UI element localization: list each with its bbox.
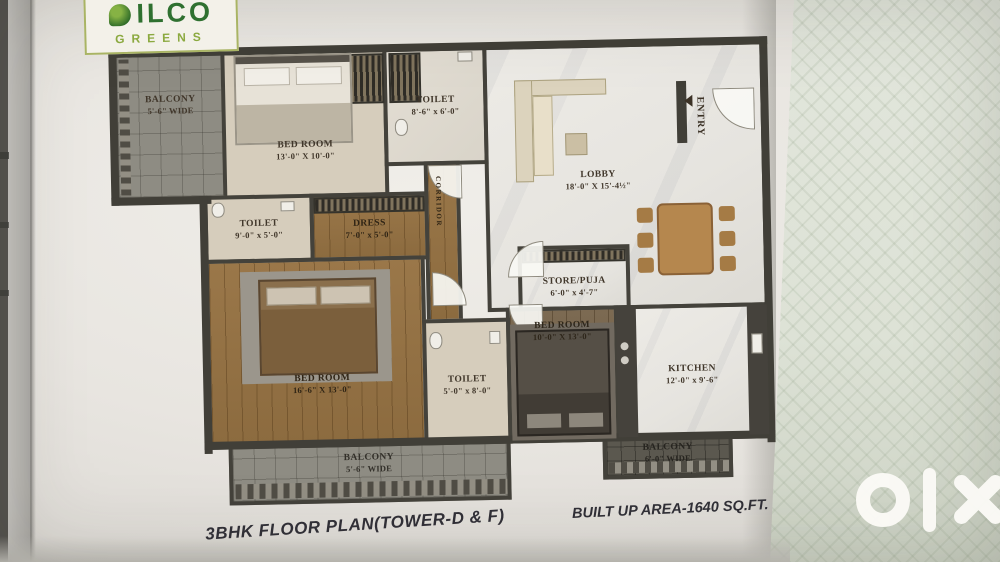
paper-edge-marks — [0, 290, 9, 296]
bed-headboard — [235, 55, 349, 64]
washbasin-graphic — [280, 201, 294, 211]
sofa-graphic — [532, 96, 554, 176]
wc-graphic — [429, 332, 442, 349]
pillow-graphic — [244, 67, 290, 86]
corridor-label: CORRIDOR — [434, 176, 443, 227]
paper-edge-marks — [0, 152, 9, 159]
room-balcony-top — [112, 52, 227, 202]
bed-graphic — [515, 329, 611, 437]
chair-graphic — [720, 256, 736, 271]
chair-graphic — [637, 233, 653, 248]
paper-crease — [30, 0, 36, 562]
builder-logo: ILCO GREENS — [83, 0, 239, 55]
floor-plan: ENTRY CORRIDOR BALCONY 5'-6" WIDE BED RO… — [105, 33, 781, 515]
coffee-table-graphic — [565, 133, 587, 155]
paper-edge-strip — [8, 0, 32, 562]
pillow-graphic — [569, 413, 603, 428]
wall-segment — [676, 81, 687, 143]
room-label-toilet-top: TOILET 8'-6" x 6'-0" — [387, 93, 483, 118]
washbasin-graphic — [457, 51, 472, 61]
room-label-balcony-right: BALCONY 6'-0" WIDE — [606, 440, 730, 466]
wall-segment — [111, 196, 211, 206]
dining-table-graphic — [657, 202, 714, 275]
room-label-balcony-top: BALCONY 5'-6" WIDE — [118, 93, 222, 119]
leaf-icon — [108, 3, 131, 26]
wc-graphic — [211, 203, 224, 218]
wardrobe-graphic — [313, 195, 424, 213]
sink-graphic — [751, 333, 762, 353]
olx-o-icon — [856, 473, 910, 527]
room-dims: 5'-6" WIDE — [118, 105, 222, 118]
room-label-lobby: LOBBY 18'-0" X 15'-4½" — [528, 167, 668, 193]
room-label-dress: DRESS 7'-0" x 5'-0" — [312, 216, 427, 242]
entry-arrow-icon — [684, 95, 692, 107]
olx-x-icon — [949, 468, 1000, 532]
blanket-graphic — [236, 103, 351, 143]
bed-graphic — [258, 277, 378, 375]
pillow-graphic — [296, 66, 342, 85]
room-label-bedroom-3: BED ROOM 16'-6" X 13'-0" — [247, 371, 397, 398]
room-dims: 10'-0" X 13'-0" — [508, 331, 616, 344]
sofa-graphic — [514, 80, 534, 182]
room-label-bedroom-1: BED ROOM 13'-0" X 10'-0" — [232, 137, 378, 163]
builder-subname: GREENS — [96, 29, 226, 46]
room-dims: 5'-0" x 8'-0" — [425, 385, 509, 398]
chair-graphic — [638, 258, 654, 273]
balcony-railing — [235, 479, 507, 500]
entry-label: ENTRY — [694, 96, 706, 136]
room-label-balcony-bottom: BALCONY 5'-6" WIDE — [299, 450, 439, 476]
wc-graphic — [395, 119, 408, 136]
paper-bottom-shadow — [0, 536, 790, 562]
balcony-railing — [118, 60, 131, 196]
chair-graphic — [637, 208, 653, 223]
room-label-toilet-bottom: TOILET 5'-0" x 8'-0" — [425, 373, 509, 398]
room-label-kitchen: KITCHEN 12'-0" x 9'-6" — [617, 361, 767, 388]
builder-name: ILCO — [136, 0, 213, 30]
room-dims: 9'-0" x 5'-0" — [206, 229, 312, 242]
room-label-store-puja: STORE/PUJA 6'-0" x 4'-7" — [520, 274, 628, 300]
olx-bar-icon — [923, 468, 936, 532]
washbasin-graphic — [489, 331, 500, 344]
room-dims: 6'-0" x 4'-7" — [520, 286, 628, 299]
olx-logo — [856, 464, 1000, 536]
bed-graphic — [233, 53, 353, 145]
room-label-toilet-left: TOILET 9'-0" x 5'-0" — [206, 217, 312, 243]
photo-left-edge — [0, 0, 8, 562]
room-dims: 8'-6" x 6'-0" — [388, 105, 484, 118]
room-label-bedroom-2: BED ROOM 10'-0" X 13'-0" — [508, 318, 616, 344]
chair-graphic — [719, 231, 735, 246]
listing-photo: ILCO GREENS — [0, 0, 1000, 562]
pillow-graphic — [266, 287, 316, 306]
blanket-graphic — [261, 307, 376, 373]
chair-graphic — [719, 206, 735, 221]
pillow-graphic — [527, 414, 561, 429]
pillow-graphic — [320, 286, 370, 305]
paper-edge-marks — [0, 222, 9, 228]
